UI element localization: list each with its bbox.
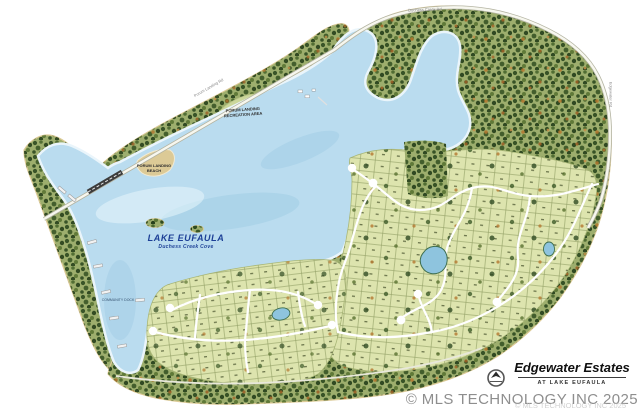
lake-streak <box>104 260 136 340</box>
cul-de-sac <box>369 179 378 188</box>
cul-de-sac <box>414 290 422 298</box>
cul-de-sac <box>166 304 174 312</box>
cul-de-sac <box>314 301 322 309</box>
island-trees <box>191 226 204 233</box>
cul-de-sac <box>328 321 336 329</box>
plat-map-page: LAKE EUFAULA Duchess Creek Cove PORUM LA… <box>0 0 640 412</box>
pond <box>544 242 555 256</box>
edgewater-logo <box>485 366 507 390</box>
cul-de-sac <box>397 316 406 325</box>
forest-notch-trees <box>404 141 448 198</box>
cul-de-sac <box>348 164 356 172</box>
marina-building <box>298 90 303 93</box>
title-divider <box>518 377 626 378</box>
dock <box>135 298 144 302</box>
marina-building <box>312 89 316 91</box>
marina-building <box>305 95 310 98</box>
cul-de-sac <box>493 298 502 307</box>
subdivision-east <box>326 149 597 372</box>
forest-notch <box>404 141 448 198</box>
map-illustration <box>0 0 640 412</box>
mls-watermark-echo: © MLS TECHNOLOGY INC 2025 <box>515 401 626 410</box>
subdivision-east-scattered-trees <box>326 149 597 372</box>
island-trees <box>146 219 164 228</box>
cul-de-sac <box>149 327 157 335</box>
